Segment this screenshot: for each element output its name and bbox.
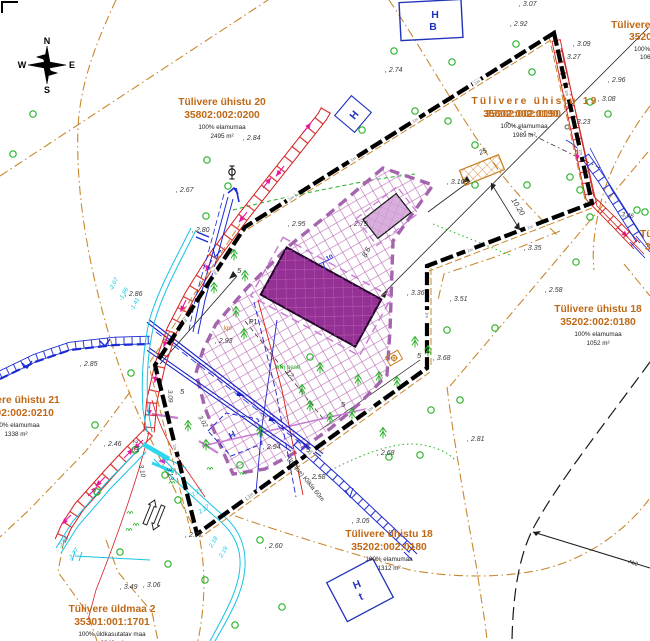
svg-text:, 2.60: , 2.60: [265, 543, 283, 550]
svg-text:, 2.84: , 2.84: [243, 135, 261, 142]
svg-text:Tülivere ühistu 18: Tülivere ühistu 18: [345, 529, 433, 540]
svg-text:Tülivere ühistu 21: Tülivere ühistu 21: [0, 395, 60, 406]
svg-text:, 2.68: , 2.68: [377, 450, 395, 457]
svg-text:, 3.51: , 3.51: [450, 296, 468, 303]
svg-text:, 2.85: , 2.85: [80, 361, 98, 368]
svg-text:1312 m²: 1312 m²: [377, 565, 400, 572]
svg-text:1m: 1m: [424, 312, 429, 318]
svg-text:100% ela: 100% ela: [634, 46, 650, 53]
svg-text:100% üldkasutatav maa: 100% üldkasutatav maa: [78, 631, 146, 638]
svg-text:Tülivere: Tülivere: [640, 229, 650, 240]
svg-text:, 3.35: , 3.35: [524, 245, 542, 252]
svg-text:, 2.77: , 2.77: [185, 532, 204, 539]
svg-text:35202:0: 35202:0: [629, 32, 650, 43]
svg-text:, 2.92: , 2.92: [510, 21, 528, 28]
svg-text:, 2.94: , 2.94: [263, 444, 281, 451]
svg-text:N: N: [44, 36, 51, 46]
svg-text:, 3.09: , 3.09: [573, 41, 591, 48]
svg-text:35: 35: [645, 242, 650, 253]
svg-text:, 2.81: , 2.81: [467, 436, 485, 443]
svg-text:100% elamumaa: 100% elamumaa: [574, 331, 622, 338]
svg-text:35202:002:0190: 35202:002:0190: [485, 109, 561, 120]
svg-text:, 3.36: , 3.36: [407, 290, 425, 297]
svg-text:, 2.46: , 2.46: [104, 441, 122, 448]
svg-text:, 2.96: , 2.96: [608, 77, 626, 84]
svg-text:, 3.68: , 3.68: [433, 355, 451, 362]
svg-text:1989 m²: 1989 m²: [512, 132, 535, 139]
svg-text:E: E: [69, 60, 75, 70]
svg-text:ePj pese: ePj pese: [276, 364, 301, 371]
svg-text:, 3.49: , 3.49: [120, 584, 138, 591]
svg-text:, 2.79: , 2.79: [350, 221, 368, 228]
svg-text:100% elamumaa: 100% elamumaa: [0, 422, 40, 429]
svg-text:kpl: kpl: [224, 326, 232, 332]
svg-text:1338 m²: 1338 m²: [4, 431, 27, 438]
svg-text:, 3.27: , 3.27: [563, 54, 582, 61]
svg-text:1052 m²: 1052 m²: [586, 340, 609, 347]
svg-text:35802:002:0200: 35802:002:0200: [184, 110, 260, 121]
svg-text:35202:002:0180: 35202:002:0180: [351, 542, 427, 553]
svg-text:35202:002:0210: 35202:002:0210: [0, 408, 54, 419]
svg-text:, 3.08: , 3.08: [598, 96, 616, 103]
svg-text:Tülivere ü: Tülivere ü: [611, 20, 650, 31]
svg-text:3.09: 3.09: [166, 390, 174, 403]
svg-text:106: 106: [640, 54, 650, 61]
svg-text:Tülivere ühistu 19: Tülivere ühistu 19: [471, 96, 598, 107]
svg-text:100% elamumaa: 100% elamumaa: [198, 124, 246, 131]
svg-text:, 3.06: , 3.06: [143, 582, 161, 589]
svg-text:, 2.95: , 2.95: [288, 221, 306, 228]
svg-text:35301:001:1701: 35301:001:1701: [74, 617, 150, 628]
svg-text:, 3.07: , 3.07: [519, 1, 538, 8]
svg-text:Tülivere ühistu 20: Tülivere ühistu 20: [178, 97, 266, 108]
svg-text:, 2.67: , 2.67: [176, 187, 195, 194]
svg-text:, 3.16: , 3.16: [447, 179, 465, 186]
svg-text:, 3.05: , 3.05: [352, 518, 370, 525]
svg-text:B: B: [429, 21, 437, 33]
svg-text:, 2.74: , 2.74: [385, 67, 403, 74]
svg-text:Tülivere üldmaa 2: Tülivere üldmaa 2: [69, 604, 156, 615]
svg-text:, 3.23: , 3.23: [573, 119, 591, 126]
svg-text:100% elamumaa: 100% elamumaa: [365, 556, 413, 563]
svg-text:100% elamumaa: 100% elamumaa: [500, 123, 548, 130]
svg-text:H: H: [431, 9, 439, 21]
svg-text:2495 m²: 2495 m²: [210, 133, 233, 140]
svg-text:Tülivere ühistu 18: Tülivere ühistu 18: [554, 304, 642, 315]
svg-text:P1: P1: [249, 319, 258, 326]
svg-text:S: S: [44, 85, 50, 95]
svg-text:W: W: [18, 60, 27, 70]
svg-text:, 2.93: , 2.93: [215, 338, 233, 345]
svg-text:, 2.80: , 2.80: [192, 227, 210, 234]
svg-text:, 2.58: , 2.58: [545, 287, 563, 294]
svg-text:35202:002:0180: 35202:002:0180: [560, 317, 636, 328]
